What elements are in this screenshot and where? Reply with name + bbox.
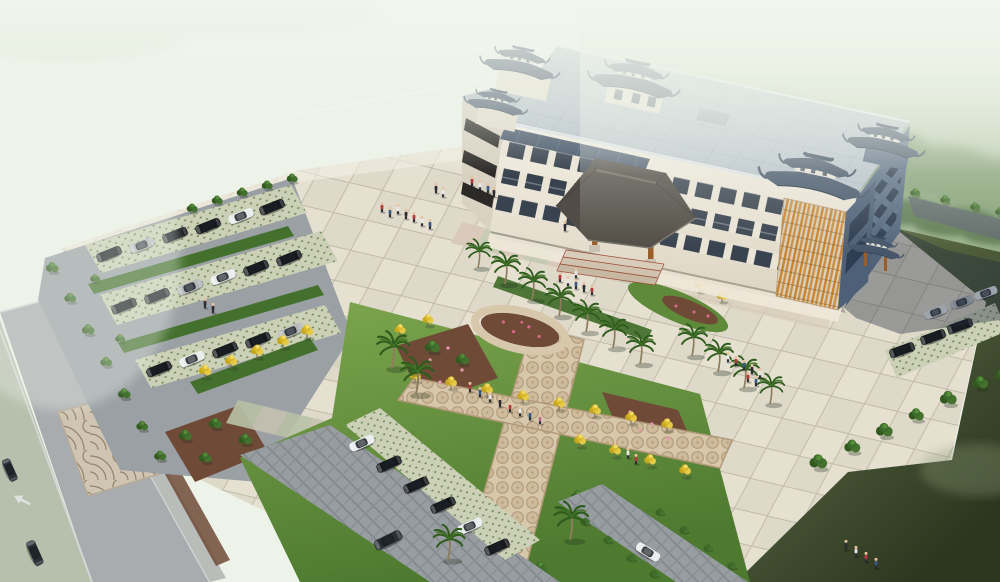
mist-overlay-forest — [580, 0, 1000, 250]
aerial-rendering — [0, 0, 1000, 582]
rendering-canvas — [0, 0, 1000, 582]
